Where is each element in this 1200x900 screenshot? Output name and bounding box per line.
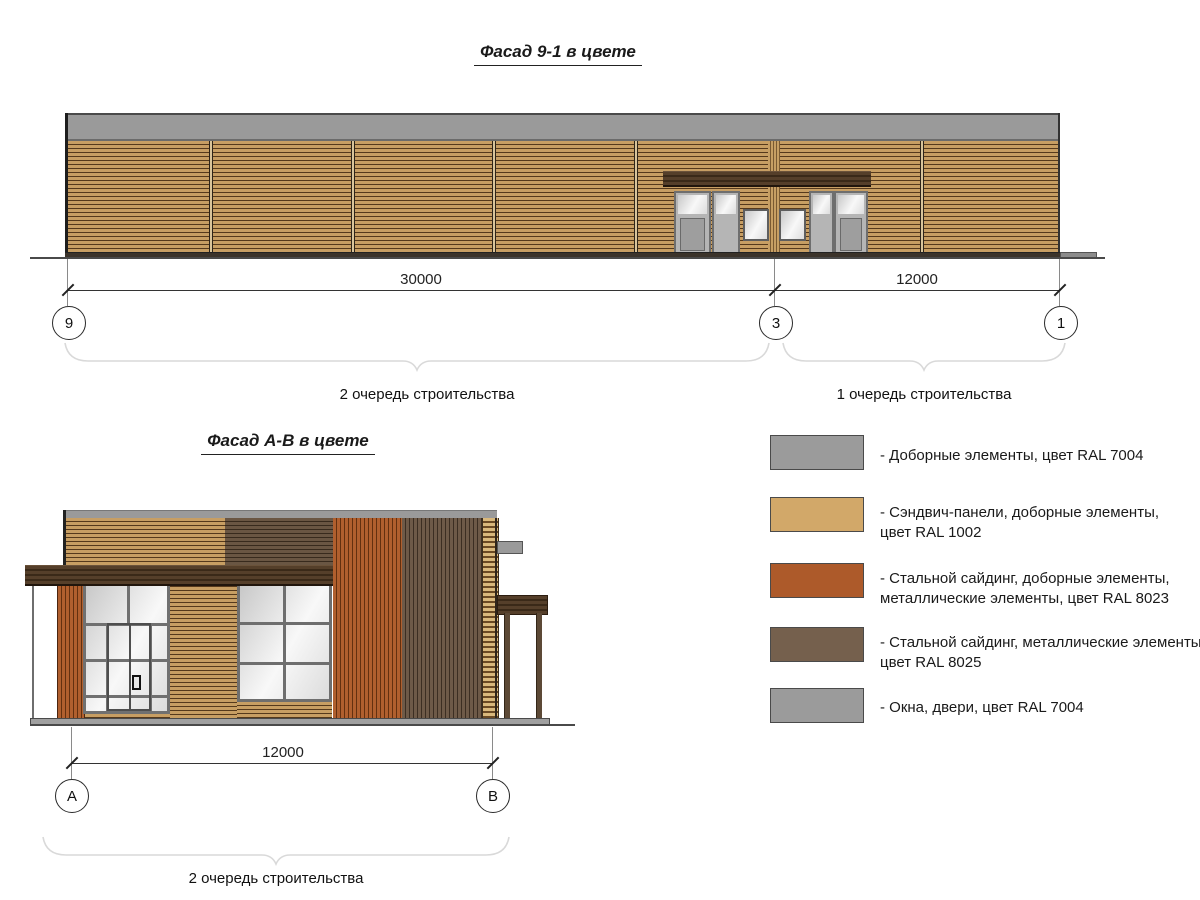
grid-bubble-3: 3 xyxy=(759,306,793,340)
grid-label: 1 xyxy=(1057,315,1065,332)
legend-swatch-ral8025 xyxy=(770,627,864,662)
panel-joint xyxy=(920,141,924,252)
door-glass-pane xyxy=(838,195,864,214)
legend-line: - Сэндвич-панели, доборные элементы, xyxy=(880,503,1200,523)
legend-line: - Стальной сайдинг, доборные элементы, xyxy=(880,569,1200,589)
extension-line-grid-b xyxy=(492,727,493,779)
door-leaf xyxy=(840,218,862,251)
legend-line: - Доборные элементы, цвет RAL 7004 xyxy=(880,446,1200,466)
phase-brace-left xyxy=(64,342,772,374)
canopy-post-left xyxy=(504,613,510,718)
window-mullion xyxy=(283,586,286,699)
panel-glass-pane xyxy=(716,195,736,214)
facade-9-1-title-text: Фасад 9-1 в цвете xyxy=(474,42,642,66)
window-transom xyxy=(240,622,329,625)
horizontal-siding-wall xyxy=(65,141,1060,252)
facade-9-1-elevation xyxy=(65,113,1060,258)
phase-label-2: 2 очередь строительства xyxy=(277,386,577,403)
phase-brace xyxy=(42,836,512,868)
dark-vertical-siding-section xyxy=(402,518,482,718)
legend-line: - Окна, двери, цвет RAL 7004 xyxy=(880,698,1200,718)
grid-bubble-a: А xyxy=(55,779,89,813)
legend-swatch-ral8023 xyxy=(770,563,864,598)
dimension-line xyxy=(72,763,493,764)
drawing-sheet: { "drawing": { "facade1": { "title": "Фа… xyxy=(0,0,1200,900)
canopy-post-right xyxy=(536,613,542,718)
large-window xyxy=(237,583,332,702)
legend-text: - Стальной сайдинг, доборные элементы, м… xyxy=(880,569,1200,609)
legend-swatch-ral1002 xyxy=(770,497,864,532)
phase-label-1: 1 очередь строительства xyxy=(774,386,1074,403)
legend-text: - Сэндвич-панели, доборные элементы, цве… xyxy=(880,503,1200,543)
extension-line-grid-9 xyxy=(67,259,68,306)
legend-text: - Доборные элементы, цвет RAL 7004 xyxy=(880,446,1200,466)
window-transom xyxy=(240,662,329,665)
facade-a-b-title: Фасад А-В в цвете xyxy=(138,431,438,455)
door-glass-pane xyxy=(678,195,707,214)
legend-swatch-windows-ral7004 xyxy=(770,688,864,723)
door-meeting-stile xyxy=(129,625,131,709)
entrance-canopy xyxy=(663,171,871,187)
legend-line: цвет RAL 8025 xyxy=(880,653,1200,673)
door-leaf xyxy=(680,218,705,251)
legend-text: - Стальной сайдинг, металлические элемен… xyxy=(880,633,1200,673)
grid-label: 3 xyxy=(772,315,780,332)
panel-glass-pane xyxy=(813,195,830,214)
side-canopy xyxy=(497,595,548,615)
entrance-double-door xyxy=(107,623,151,711)
parapet-gray-band xyxy=(65,115,1060,141)
legend-line: - Стальной сайдинг, металлические элемен… xyxy=(880,633,1200,653)
phase-label: 2 очередь строительства xyxy=(126,870,426,887)
legend-text: - Окна, двери, цвет RAL 7004 xyxy=(880,698,1200,718)
tan-siding-between-windows xyxy=(170,583,237,718)
panel-joint xyxy=(492,141,496,252)
dimension-value-12000: 12000 xyxy=(133,744,433,761)
entrance-canopy xyxy=(25,565,333,586)
entrance-glazing xyxy=(83,583,170,714)
facade-9-1-title: Фасад 9-1 в цвете xyxy=(408,42,708,66)
dimension-value-30000: 30000 xyxy=(271,271,571,288)
entrance-side-panel-left xyxy=(712,191,740,256)
phase-brace-right xyxy=(782,342,1068,374)
grid-label: В xyxy=(488,788,498,805)
orange-corner-column xyxy=(57,583,85,718)
legend-line: металлические элементы, цвет RAL 8023 xyxy=(880,589,1200,609)
grid-label: 9 xyxy=(65,315,73,332)
legend-line: цвет RAL 1002 xyxy=(880,523,1200,543)
grid-bubble-b: В xyxy=(476,779,510,813)
gray-bracket xyxy=(497,541,523,554)
left-corner-trim xyxy=(65,113,68,258)
tan-siding-below-window xyxy=(237,702,332,718)
orange-vertical-siding-section xyxy=(333,518,402,718)
grid-bubble-9: 9 xyxy=(52,306,86,340)
panel-joint xyxy=(351,141,355,252)
grid-label: А xyxy=(67,788,77,805)
entrance-door-right xyxy=(834,191,868,256)
panel-joint xyxy=(634,141,638,252)
right-corner-trim xyxy=(1058,113,1060,258)
grid-bubble-1: 1 xyxy=(1044,306,1078,340)
small-window-right xyxy=(779,209,806,241)
glazing-mullion xyxy=(127,586,130,625)
facade-a-b-elevation xyxy=(25,510,570,726)
entrance-side-panel-right xyxy=(809,191,834,256)
legend-swatch-ral7004 xyxy=(770,435,864,470)
ground-line xyxy=(30,724,575,726)
dimension-value-12000: 12000 xyxy=(767,271,1067,288)
canopy-post xyxy=(32,583,34,718)
entrance-door-left xyxy=(674,191,711,256)
panel-joint xyxy=(209,141,213,252)
ground-line xyxy=(30,257,1105,259)
dimension-line xyxy=(68,290,1060,291)
door-handle xyxy=(132,675,141,690)
extension-line-grid-a xyxy=(71,727,72,779)
facade-a-b-title-text: Фасад А-В в цвете xyxy=(201,431,374,455)
small-window-left xyxy=(743,209,769,241)
